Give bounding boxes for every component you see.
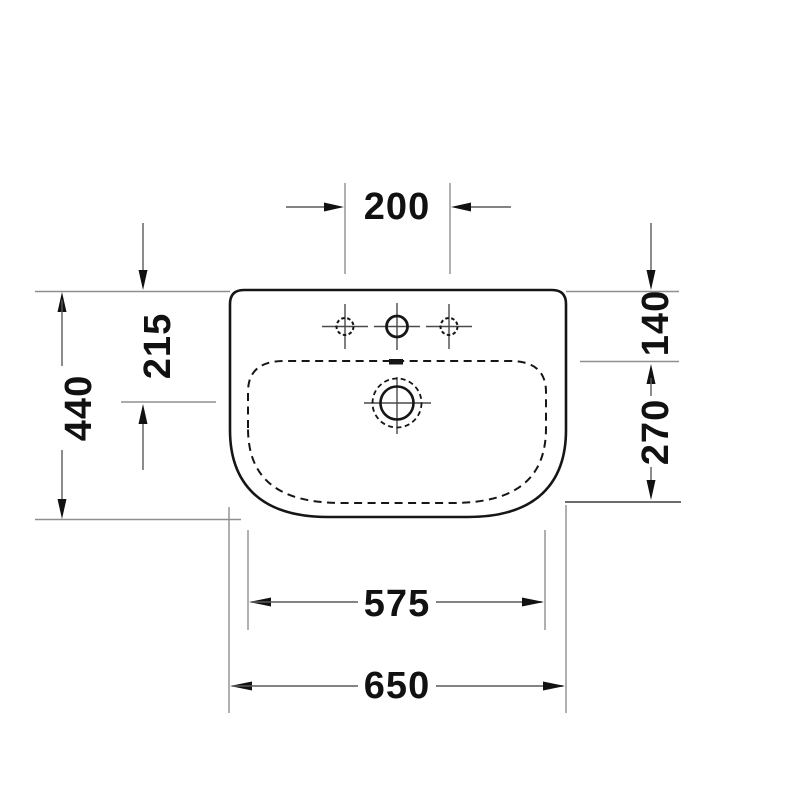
drain-hole [364,377,431,434]
washbasin-technical-drawing: 200 215 440 140 270 575 [0,0,800,800]
arrowhead-down [647,480,656,500]
dim-label-440: 440 [58,375,100,441]
sink-body [230,290,566,517]
dim-label-575: 575 [364,583,430,625]
dimension-rear-to-drain: 215 [137,223,179,470]
arrowhead-down [647,270,656,290]
drawing-canvas: 200 215 440 140 270 575 [0,0,800,800]
dimension-faucet-spacing: 200 [286,186,511,228]
faucet-hole-right [426,304,472,349]
dimension-basin-depth: 270 [635,399,677,500]
arrowhead-right [543,682,565,691]
arrowhead-right [324,203,344,212]
dimension-overall-width: 650 [230,665,565,707]
dim-label-215: 215 [137,313,179,379]
arrowhead-down [58,499,67,519]
extension-lines [35,183,681,713]
dim-label-200: 200 [364,186,430,228]
arrowhead-up [139,404,148,424]
arrowhead-left [451,203,471,212]
dim-label-650: 650 [364,665,430,707]
dimension-overall-depth: 440 [58,292,101,519]
dimension-basin-width: 575 [249,583,544,625]
arrowhead-down [139,270,148,290]
arrowhead-right [522,598,544,607]
faucet-hole-left [322,304,368,349]
overflow-slot [389,359,403,365]
dimension-rear-to-basin: 140 [635,223,677,396]
faucet-hole-center [374,303,420,350]
dim-label-140: 140 [635,290,677,356]
dim-label-270: 270 [635,399,677,465]
